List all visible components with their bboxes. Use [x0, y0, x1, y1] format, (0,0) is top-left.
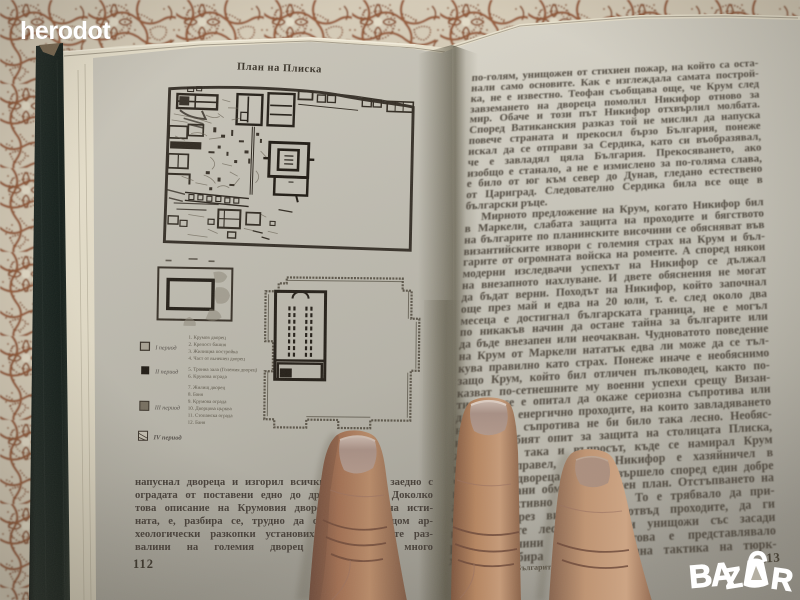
svg-text:R: R	[769, 562, 795, 598]
svg-text:Z: Z	[722, 562, 745, 596]
